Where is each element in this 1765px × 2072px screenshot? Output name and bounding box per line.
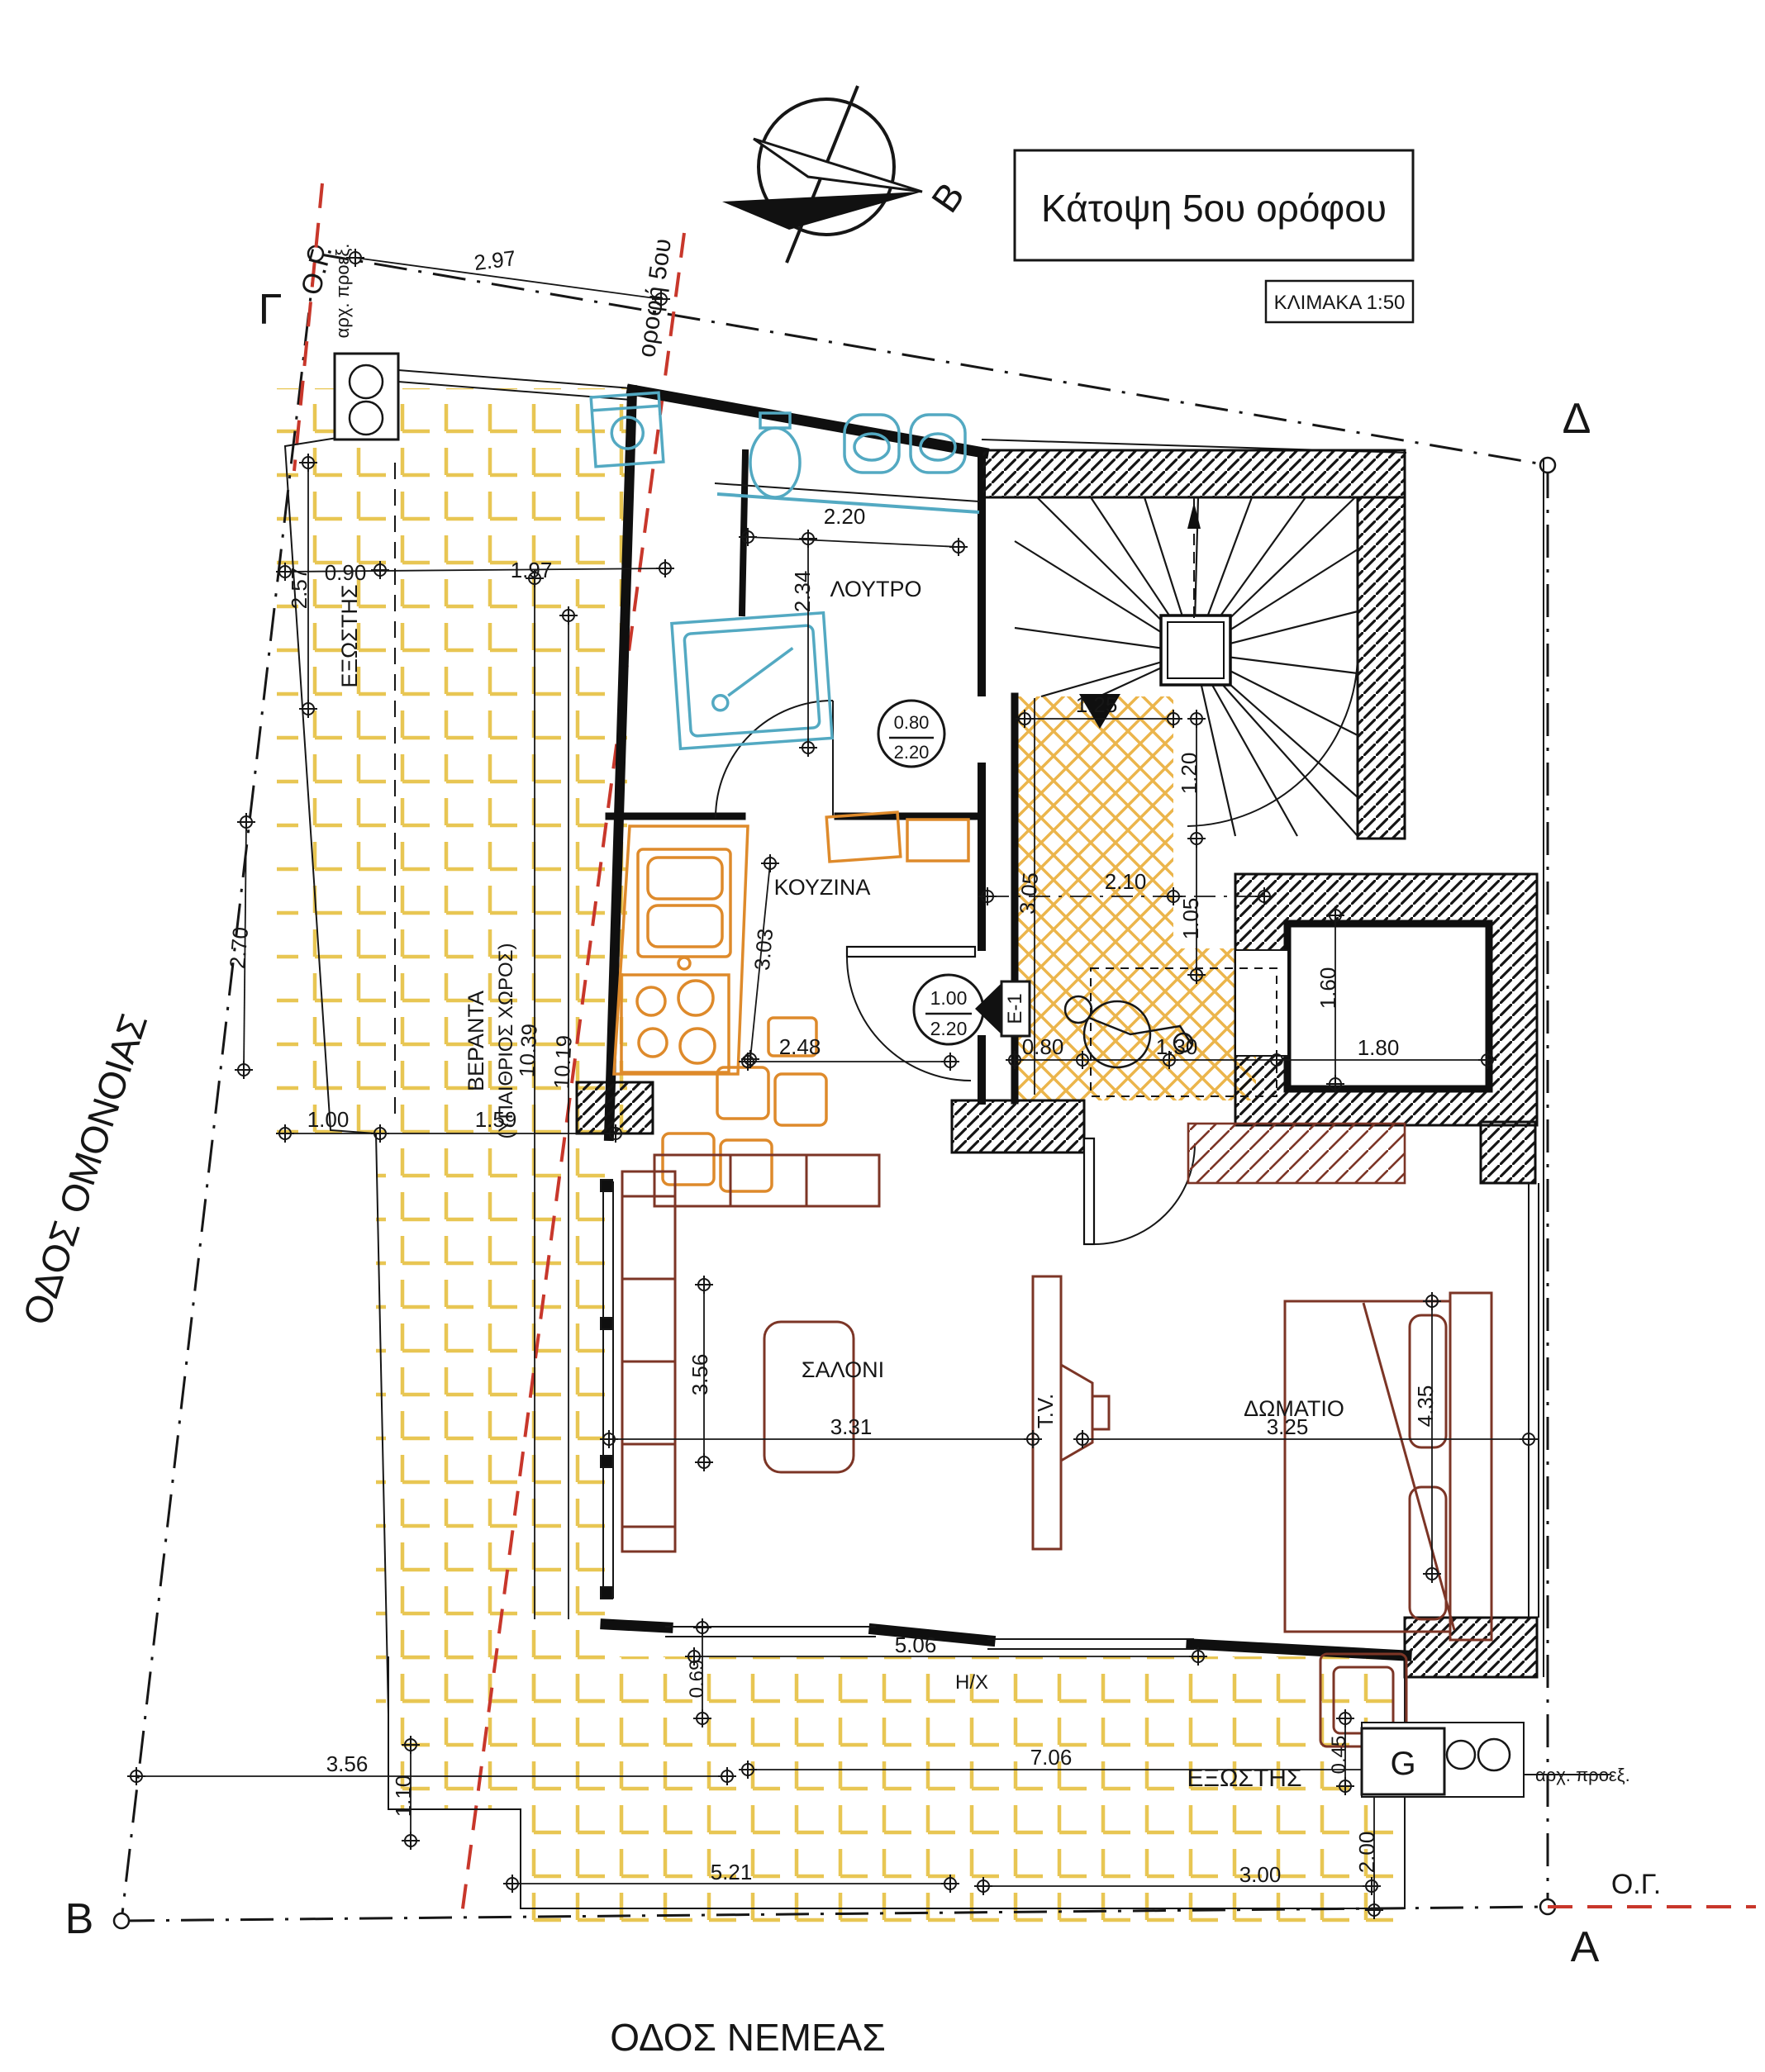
dim-2-57: 2.57 [287, 568, 312, 610]
arch-projection-top: αρχ. προεξ. [332, 244, 353, 339]
street-omonoias: ΟΔΟΣ ΟΜΟΝΟΙΑΣ [14, 1008, 155, 1329]
tv-label: T.V. [1033, 1394, 1058, 1428]
arch-projection-bottom: αρχ. προεξ. [1535, 1765, 1630, 1785]
floor-plan-canvas: 0.80 2.20 1.00 2.20 E-1 G Κάτοψη 5ου ορό… [0, 0, 1765, 2072]
kitchen-sink-icon [638, 849, 730, 969]
dim-1-25: 1.25 [1076, 692, 1118, 717]
corner-alpha: Α [1571, 1923, 1600, 1971]
corner-beta: Β [65, 1895, 94, 1943]
dim-5-06: 5.06 [895, 1632, 937, 1657]
corner-delta: Δ [1563, 395, 1591, 443]
north-compass-icon [722, 86, 922, 263]
room-saloni: ΣΑΛΟΝΙ [802, 1357, 884, 1382]
sink-icon [844, 415, 899, 473]
dim-3-05: 3.05 [1015, 872, 1043, 915]
dim-1-30: 1.30 [1156, 1034, 1198, 1059]
hx-label: Η/Χ [955, 1671, 988, 1694]
dim-1-60: 1.60 [1315, 967, 1340, 1010]
roof-line-label: οροφή 5ου [633, 237, 677, 359]
entry-door-label: E-1 [1004, 993, 1026, 1024]
toilet-icon [750, 413, 800, 497]
dim-2-48: 2.48 [779, 1034, 821, 1059]
dim-7-06: 7.06 [1030, 1745, 1073, 1770]
dim-0-69: 0.69 [686, 1660, 708, 1699]
dim-3-00: 3.00 [1239, 1862, 1282, 1887]
dim-2-10: 2.10 [1105, 869, 1147, 894]
dim-0-45: 0.45 [1328, 1736, 1350, 1775]
scale-label: ΚΛΙΜΑΚΑ 1:50 [1274, 292, 1406, 314]
north-label: Β [923, 174, 973, 220]
dim-1-20: 1.20 [1177, 753, 1201, 795]
title-block: Κάτοψη 5ου ορόφου ΚΛΙΜΑΚΑ 1:50 [1015, 150, 1413, 322]
dim-1-10: 1.10 [391, 1775, 416, 1818]
building-line-bottom: Ο.Γ. [1611, 1869, 1661, 1900]
dim-10-39: 10.39 [514, 1023, 541, 1078]
dim-3-31: 3.31 [830, 1414, 873, 1439]
door-width: 1.00 [930, 987, 968, 1009]
dim-2-20-bath: 2.20 [824, 504, 866, 529]
dim-0-90: 0.90 [325, 560, 367, 585]
dim-1-80: 1.80 [1358, 1035, 1400, 1060]
dim-1-97: 1.97 [511, 558, 553, 582]
dim-1-00-left: 1.00 [307, 1107, 350, 1132]
balcony-bottom-label: ΕΞΩΣΤΗΣ [1187, 1765, 1301, 1792]
coffee-table [764, 1322, 854, 1472]
entry-door-tag: E-1 [975, 981, 1030, 1036]
door-height: 2.20 [894, 742, 930, 763]
dim-4-35: 4.35 [1413, 1385, 1438, 1428]
sofa [622, 1155, 879, 1552]
planter-circle [1447, 1741, 1475, 1769]
door-sign-bath: 0.80 2.20 [878, 701, 944, 767]
door-sign-kitchen: 1.00 2.20 [914, 975, 983, 1044]
door-height: 2.20 [930, 1018, 968, 1039]
door-width: 0.80 [894, 712, 930, 733]
dim-2-70: 2.70 [225, 926, 253, 970]
dim-3-25: 3.25 [1267, 1414, 1309, 1439]
planter-box [335, 354, 398, 440]
garbage-area: G [1362, 1723, 1610, 1797]
stove-icon [621, 975, 729, 1072]
furniture [622, 1124, 1491, 1746]
dim-3-03: 3.03 [749, 928, 778, 972]
dim-3-56-bottom: 3.56 [326, 1751, 369, 1776]
dim-2-34: 2.34 [790, 571, 815, 613]
balcony-left-label: ΕΞΩΣΤΗΣ [337, 584, 362, 687]
dim-2-97: 2.97 [473, 245, 517, 275]
corner-gamma: Γ [259, 286, 283, 334]
room-veranta: ΒΕΡΑΝΤΑ [464, 991, 488, 1091]
dim-10-19: 10.19 [549, 1034, 576, 1090]
page-title: Κάτοψη 5ου ορόφου [1041, 187, 1387, 230]
garbage-label: G [1390, 1746, 1415, 1782]
street-nemeas: ΟΔΟΣ ΝΕΜΕΑΣ [610, 2016, 886, 2059]
room-loutro: ΛΟΥΤΡΟ [830, 577, 921, 601]
dim-2-00: 2.00 [1354, 1832, 1379, 1874]
closet [1188, 1124, 1405, 1183]
dim-3-56-living: 3.56 [687, 1354, 712, 1396]
bed [1285, 1293, 1491, 1640]
dim-1-59: 1.59 [475, 1107, 517, 1132]
dim-1-05: 1.05 [1178, 898, 1203, 940]
bathroom-fixtures [591, 392, 979, 748]
room-kouzina: ΚΟΥΖΙΝΑ [774, 875, 871, 900]
planter-circle [1478, 1739, 1510, 1770]
dim-0-80-hall: 0.80 [1022, 1034, 1064, 1059]
dim-5-21: 5.21 [711, 1860, 753, 1884]
